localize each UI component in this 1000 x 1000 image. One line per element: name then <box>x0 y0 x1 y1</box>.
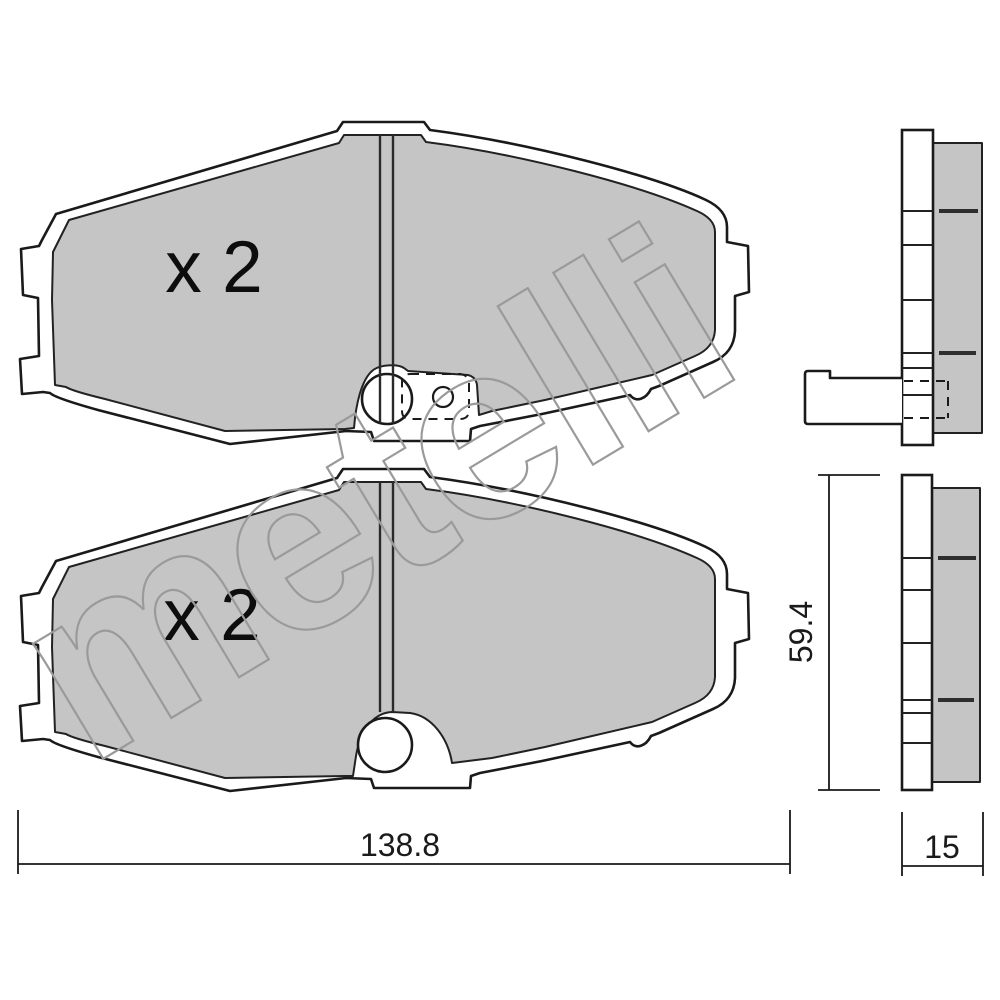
wear-sensor-tab <box>805 371 902 424</box>
technical-drawing-canvas: x 2 x 2 <box>0 0 1000 1000</box>
top-pad-quantity-label: x 2 <box>165 227 262 308</box>
side-upper-friction-block <box>933 143 982 433</box>
dim-thickness-label: 15 <box>924 829 960 865</box>
side-lower-friction-block <box>932 488 980 782</box>
side-upper-backplate <box>902 130 933 445</box>
side-view-lower <box>902 475 980 790</box>
dim-width-label: 138.8 <box>360 827 440 863</box>
dim-height-label: 59.4 <box>783 601 819 663</box>
bottom-pad-center-hole <box>358 718 412 772</box>
brake-pad-drawing: x 2 x 2 <box>0 0 1000 1000</box>
dimension-height: 59.4 <box>783 475 880 790</box>
side-view-upper <box>805 130 982 445</box>
dimension-width: 138.8 <box>18 810 790 874</box>
dimension-thickness: 15 <box>902 812 983 876</box>
